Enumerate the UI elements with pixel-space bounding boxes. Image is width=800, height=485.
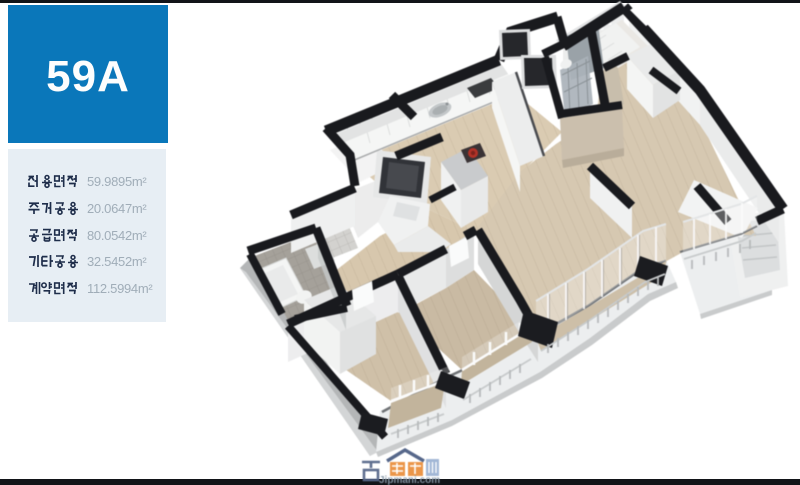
svg-text:Jipmani.com: Jipmani.com xyxy=(379,475,440,485)
